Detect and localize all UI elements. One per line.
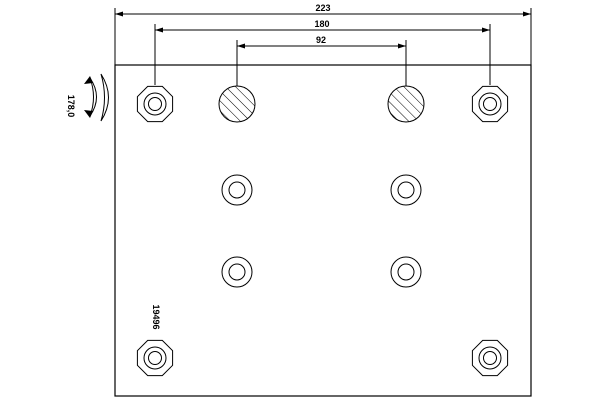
technical-drawing-canvas: 223 180 92 178,0 19496 [0, 0, 600, 400]
backing-plate-outline [115, 65, 531, 396]
arrowhead-right-icon [482, 28, 490, 33]
arc-arrow-top-icon [84, 76, 93, 84]
hole-ring-inner [484, 98, 497, 111]
arrowhead-left-icon [115, 12, 123, 17]
plain-hole-mid1-right [391, 175, 421, 205]
rivet-hole-top-left [137, 86, 172, 121]
arc-band-outer [101, 74, 109, 121]
part-number-label: 19496 [151, 304, 161, 329]
hole-inner [229, 264, 245, 280]
arrowhead-left-icon [237, 44, 245, 49]
rivet-hole-bottom-right [472, 340, 507, 375]
hole-ring-inner [149, 352, 162, 365]
arc-arrow-bottom-icon [84, 110, 93, 118]
hole-ring-inner [149, 98, 162, 111]
dimension-180-label: 180 [314, 19, 329, 29]
rivet-hole-bottom-left [137, 340, 172, 375]
hole-ring-inner [484, 352, 497, 365]
hole-inner [229, 182, 245, 198]
rivet-hole-top-right [472, 86, 507, 121]
arrowhead-right-icon [523, 12, 531, 17]
plain-hole-mid1-left [222, 175, 252, 205]
plain-hole-mid2-left [222, 257, 252, 287]
arc-radius-label: 178,0 [66, 95, 76, 118]
plugged-hole-top-right-icon [388, 86, 424, 122]
dimension-223-label: 223 [315, 3, 330, 13]
arrowhead-left-icon [155, 28, 163, 33]
plugged-hole-top-left-icon [219, 86, 255, 122]
curvature-section-icon [84, 74, 109, 121]
hole-inner [398, 264, 414, 280]
dimension-92-label: 92 [316, 35, 326, 45]
arc-band-inner [90, 78, 97, 116]
brake-lining-drawing: 223 180 92 178,0 19496 [0, 0, 600, 400]
plain-hole-mid2-right [391, 257, 421, 287]
arrowhead-right-icon [398, 44, 406, 49]
hole-inner [398, 182, 414, 198]
